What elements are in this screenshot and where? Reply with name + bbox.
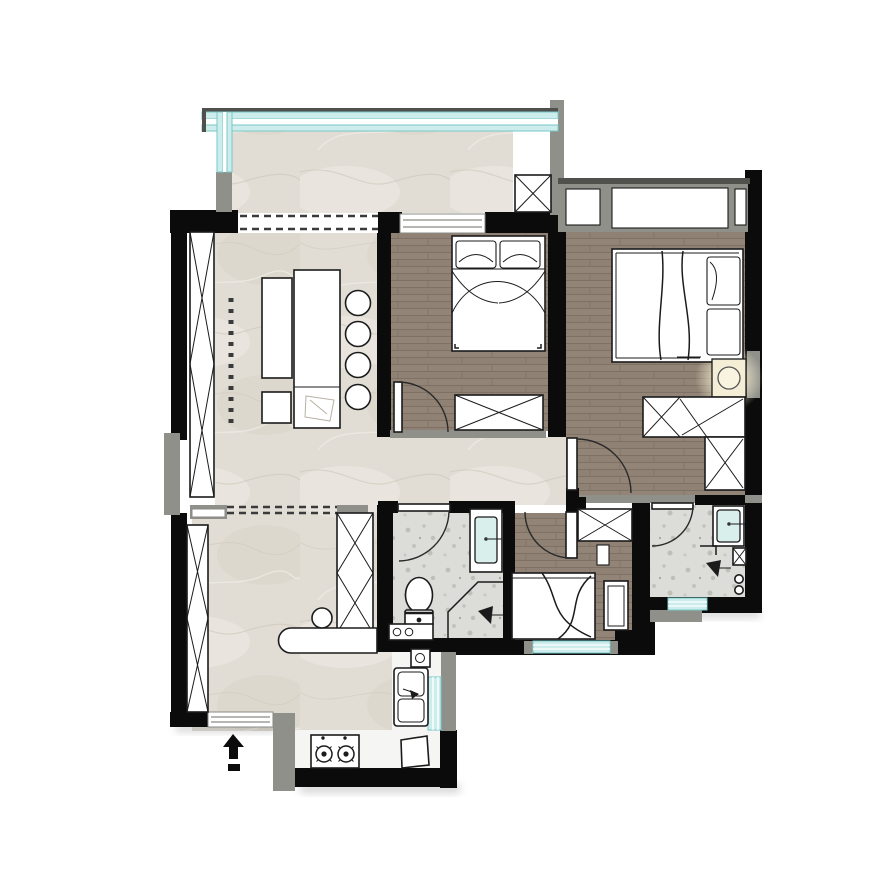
kitchen-appliance-box bbox=[411, 649, 430, 667]
balcony-floor bbox=[217, 122, 513, 213]
bedroom3-window-jamb-right bbox=[610, 641, 618, 654]
balcony-column bbox=[515, 175, 551, 212]
bedroom3-wardrobe bbox=[578, 509, 632, 541]
table-lamp bbox=[718, 367, 740, 389]
lower-tall-cabinet bbox=[187, 525, 208, 712]
bedroom3-bed bbox=[512, 573, 595, 639]
middle-tall-cabinet bbox=[337, 513, 373, 633]
toilet bbox=[405, 578, 433, 627]
entry-threshold bbox=[208, 712, 273, 727]
fixture-dot bbox=[735, 575, 743, 583]
entry-arrow-base bbox=[228, 764, 240, 771]
stove bbox=[311, 735, 359, 768]
bathroom2-column bbox=[733, 548, 746, 565]
kitchen-tray bbox=[401, 736, 429, 768]
kitchen-window-pier bbox=[441, 652, 456, 731]
bedroom3-window-jamb-left bbox=[524, 641, 533, 654]
bathroom2-window bbox=[668, 598, 707, 610]
corridor-top-sill bbox=[390, 430, 546, 438]
left-exterior-sill bbox=[164, 433, 180, 515]
bedroom1-bed bbox=[452, 236, 545, 351]
bedroom1-wardrobe bbox=[455, 395, 543, 430]
entry bbox=[223, 734, 244, 771]
bedroom3-shelf bbox=[597, 545, 609, 565]
bathroom1-vanity bbox=[470, 509, 502, 572]
entry-arrow-icon bbox=[223, 734, 244, 759]
bedroom1-balcony-window bbox=[400, 214, 485, 233]
bedroom3-window bbox=[533, 641, 610, 653]
bedroom2-nightstand bbox=[712, 359, 746, 397]
kitchen-sink bbox=[394, 668, 428, 726]
floor-plan-canvas bbox=[0, 0, 895, 895]
fixture-dot bbox=[735, 586, 743, 594]
bar-stool bbox=[312, 608, 332, 628]
dining-threshold bbox=[192, 509, 225, 517]
bathroom2-window-sill bbox=[650, 610, 702, 622]
kitchen-window bbox=[428, 677, 441, 730]
entry-tall-cabinet bbox=[190, 232, 214, 497]
hallway-floor bbox=[378, 437, 568, 505]
balcony-left-pier bbox=[216, 172, 232, 212]
island-counter bbox=[262, 270, 340, 428]
floor-plan-drawing bbox=[0, 0, 895, 895]
bedroom3-nightstand bbox=[604, 581, 628, 630]
bedroom2-bay-window bbox=[558, 178, 750, 232]
washer bbox=[389, 624, 433, 640]
kitchen-left-pier bbox=[273, 713, 295, 791]
bathroom2-vanity bbox=[713, 506, 745, 546]
bedroom2-bed bbox=[612, 249, 743, 362]
